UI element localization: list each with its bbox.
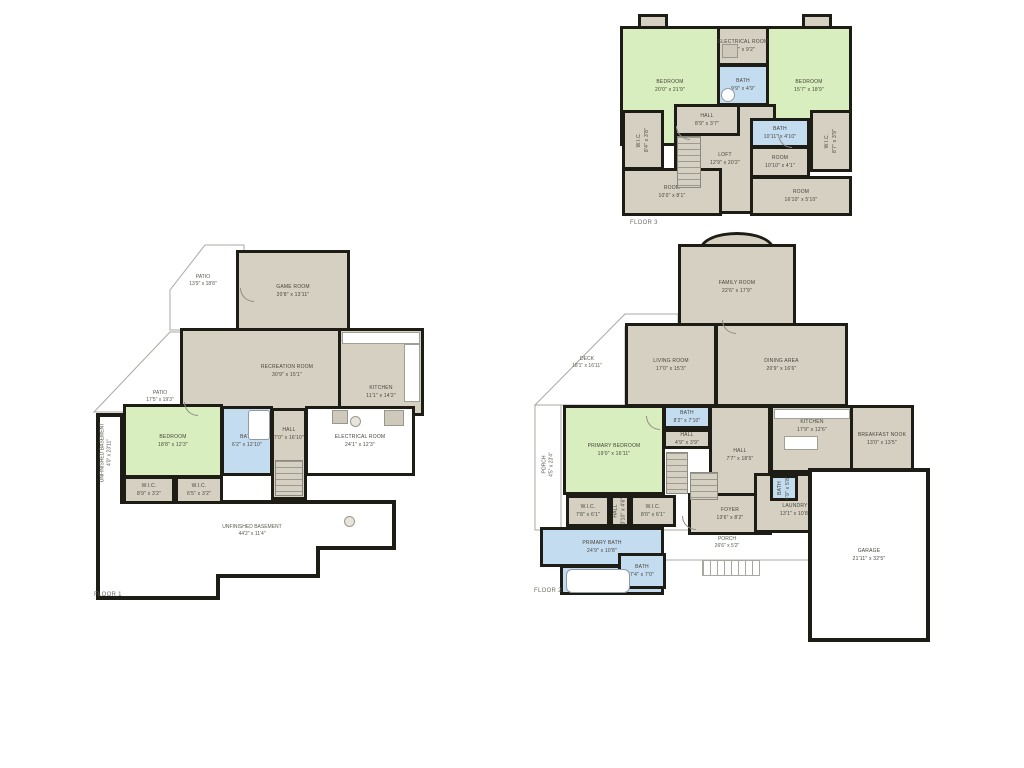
tub-icon	[566, 569, 630, 593]
floor-2-plan: FAMILY ROOM 22'6" x 17'9" LIVING ROOM 17…	[532, 228, 932, 646]
room-name: ROOM	[772, 155, 788, 162]
room-name: GAME ROOM	[276, 284, 309, 291]
room-name: BATH	[773, 126, 787, 133]
room-dims: 10'0" x 8'1"	[658, 193, 685, 200]
stairs-icon	[690, 472, 718, 500]
room-label: BEDROOM 18'8" x 12'3"	[158, 434, 188, 448]
room-name: BEDROOM	[656, 79, 683, 86]
room-name: W.I.C.	[824, 134, 831, 149]
room-label: RECREATION ROOM 30'9" x 15'1"	[261, 364, 313, 378]
floor-3-plan: BEDROOM 20'0" x 21'9" BEDROOM 15'7" x 18…	[618, 14, 854, 230]
side-porch-label: PORCH 4'5" x 23'4"	[542, 435, 555, 495]
room-name: W.I.C.	[581, 504, 596, 511]
room-name: LAUNDRY	[782, 503, 807, 510]
room-bottom-left: ROOM 10'0" x 8'1"	[622, 168, 722, 216]
room-dims: 8'0" x 6'1"	[641, 512, 665, 519]
room-name: PRIMARY BEDROOM	[588, 443, 641, 450]
room-dims: 13'6" x 8'2"	[716, 515, 743, 522]
room-dims: 20'0" x 21'9"	[655, 87, 685, 94]
room-family: FAMILY ROOM 22'6" x 17'9"	[678, 244, 796, 330]
tub-icon	[248, 410, 270, 440]
room-wic-left: W.I.C. 8'9" x 3'2"	[123, 476, 175, 504]
room-dims: 21'11" x 32'5"	[853, 556, 886, 563]
room-name: HALL	[282, 427, 295, 434]
room-label: BEDROOM 20'0" x 21'9"	[655, 79, 685, 93]
room-dims: 44'2" x 11'4"	[238, 531, 265, 538]
room-name: BEDROOM	[159, 434, 186, 441]
room-name: KITCHEN	[800, 419, 823, 426]
utility-box-icon	[384, 410, 404, 426]
room-dims: 19'0" x 16'11"	[598, 451, 631, 458]
room-dims: 17'5" x 19'3"	[146, 397, 173, 404]
room-dims: 10'10" x 4'1"	[765, 163, 795, 170]
deck-label: DECK 18'1" x 16'11"	[552, 356, 622, 369]
room-dims: 7'7" x 18'5"	[726, 456, 753, 463]
room-dims: 8'9" x 3'7"	[695, 121, 719, 128]
room-name: BATH	[736, 78, 750, 85]
room-label: HALL 7'0" x 16'10"	[274, 427, 304, 441]
room-name: BREAKFAST NOOK	[858, 432, 906, 439]
room-bath-right: BATH 10'11" x 4'10"	[750, 118, 810, 148]
basement-label: UNFINISHED BASEMENT 44'2" x 11'4"	[192, 524, 312, 537]
room-dims: 17'0" x 15'3"	[656, 366, 686, 373]
utility-box-icon	[722, 44, 738, 58]
room-dims: 26'6" x 5'2"	[715, 543, 740, 550]
utility-box-icon	[332, 410, 348, 424]
room-label: BATH 9'9" x 4'9"	[731, 78, 755, 92]
room-label: LAUNDRY 13'1" x 10'8"	[780, 503, 810, 517]
room-dims: 4'9" x 5'8"	[785, 476, 792, 500]
room-dims: 3'10" x 4'6"	[621, 497, 628, 524]
floor-1-label: FLOOR 1	[94, 592, 122, 598]
room-dims: 18'1" x 16'11"	[572, 363, 602, 370]
room-name: BATH	[680, 410, 694, 417]
toilet-icon	[721, 88, 735, 102]
room-label: LIVING ROOM 17'0" x 15'3"	[653, 358, 689, 372]
room-label: W.I.C. 8'0" x 6'1"	[641, 504, 665, 518]
patio-lower-label: PATIO 17'5" x 19'3"	[130, 390, 190, 403]
room-name: DINING AREA	[764, 358, 798, 365]
room-dims: 7'0" x 16'10"	[274, 435, 304, 442]
room-label: DINING AREA 20'9" x 16'6"	[764, 358, 798, 372]
room-name: BEDROOM	[795, 79, 822, 86]
room-name: W.I.C.	[192, 483, 207, 490]
room-dims: 4'0" x 23'11"	[106, 439, 113, 466]
room-name: ELECTRICAL ROOM	[335, 434, 386, 441]
room-dims: 6'2" x 12'10"	[232, 442, 262, 449]
kitchen-counter-icon	[774, 409, 850, 419]
room-name: W.I.C.	[636, 133, 643, 148]
room-dims: 13'9" x 18'8"	[189, 281, 216, 288]
room-dims: 6'5" x 3'2"	[187, 491, 211, 498]
room-label: HALL 8'9" x 3'7"	[695, 113, 719, 127]
room-bottom-right: ROOM 16'10" x 5'10"	[750, 176, 852, 216]
room-dims: 4'5" x 23'4"	[548, 452, 555, 477]
room-label: LOFT 12'9" x 20'2"	[710, 152, 740, 166]
room-dims: 8'9" x 3'2"	[137, 491, 161, 498]
floor-1-plan: GAME ROOM 20'8" x 13'11" RECREATION ROOM…	[92, 234, 424, 604]
kitchen-counter-icon	[404, 344, 420, 402]
room-name: HALL	[680, 432, 693, 439]
room-label: GAME ROOM 20'8" x 13'11"	[276, 284, 309, 298]
room-label: BATH 4'9" x 5'8"	[777, 476, 791, 500]
stairs-icon	[666, 452, 688, 494]
room-dims: 20'8" x 13'11"	[277, 292, 310, 299]
room-label: BREAKFAST NOOK 13'0" x 13'5"	[858, 432, 906, 446]
patio-upper-label: PATIO 13'9" x 18'8"	[180, 274, 226, 287]
porch-steps-icon	[702, 560, 760, 576]
room-dims: 8'7" x 3'9"	[832, 129, 839, 153]
room-name: BATH	[635, 564, 649, 571]
room-label: HALL 3'10" x 4'6"	[613, 497, 627, 524]
room-dims: 8'2" x 7'10"	[673, 418, 700, 425]
room-wic-right: W.I.C. 8'0" x 6'1"	[630, 495, 676, 527]
room-dims: 11'1" x 14'2"	[366, 393, 396, 400]
room-label: BATH 8'2" x 7'10"	[673, 410, 700, 424]
floorplan-canvas: BEDROOM 20'0" x 21'9" BEDROOM 15'7" x 18…	[0, 0, 1024, 768]
kitchen-island-icon	[784, 436, 818, 450]
room-label: KITCHEN 11'1" x 14'2"	[366, 385, 396, 399]
room-name: FOYER	[721, 507, 739, 514]
room-dims: 30'9" x 15'1"	[272, 372, 302, 379]
room-mid-right: ROOM 10'10" x 4'1"	[750, 146, 810, 178]
room-name: GARAGE	[858, 548, 881, 555]
room-label: ROOM 10'10" x 4'1"	[765, 155, 795, 169]
room-bath-upper: BATH 8'2" x 7'10"	[663, 405, 711, 429]
room-name: W.I.C.	[646, 504, 661, 511]
floor-3-label: FLOOR 3	[630, 220, 658, 226]
room-dining: DINING AREA 20'9" x 16'6"	[715, 323, 848, 407]
room-label: FOYER 13'6" x 8'2"	[716, 507, 743, 521]
room-dims: 13'0" x 13'5"	[867, 440, 897, 447]
room-breakfast-nook: BREAKFAST NOOK 13'0" x 13'5"	[850, 405, 914, 473]
room-label: BEDROOM 15'7" x 18'9"	[794, 79, 824, 93]
room-dims: 15'7" x 18'9"	[794, 87, 824, 94]
room-dims: 8'4" x 3'8"	[644, 128, 651, 152]
room-bedroom: BEDROOM 18'8" x 12'3"	[123, 404, 223, 478]
room-label: HALL 4'9" x 3'9"	[675, 432, 699, 446]
room-name: HALL	[700, 113, 713, 120]
ceiling-fan-icon	[344, 516, 355, 527]
room-dims: 16'10" x 5'10"	[784, 197, 817, 204]
room-dims: 4'9" x 3'9"	[675, 440, 699, 447]
basement-strip-label: UNFINISHED BASEMENT 4'0" x 23'11"	[100, 413, 113, 493]
room-name: RECREATION ROOM	[261, 364, 313, 371]
room-dims: 17'9" x 12'6"	[797, 427, 827, 434]
room-label: FAMILY ROOM 22'6" x 17'9"	[719, 280, 755, 294]
room-name: ROOM	[793, 189, 809, 196]
room-dims: 18'8" x 12'3"	[158, 442, 188, 449]
kitchen-counter-icon	[342, 332, 420, 344]
room-name: LOFT	[718, 152, 732, 159]
room-wic-right: W.I.C. 8'7" x 3'9"	[810, 110, 852, 172]
room-label: HALL 7'7" x 18'5"	[726, 448, 753, 462]
room-label: KITCHEN 17'9" x 12'6"	[797, 419, 827, 433]
room-name: LIVING ROOM	[653, 358, 689, 365]
room-wic-right: W.I.C. 6'5" x 3'2"	[175, 476, 223, 504]
room-dims: 7'4" x 7'0"	[630, 572, 654, 579]
room-name: BATH	[777, 481, 784, 495]
room-wic-left: W.I.C. 7'8" x 6'1"	[566, 495, 610, 527]
room-hall-small: HALL 4'9" x 3'9"	[663, 429, 711, 449]
floor-2-label: FLOOR 2	[534, 588, 562, 594]
room-name: W.I.C.	[142, 483, 157, 490]
room-name: FAMILY ROOM	[719, 280, 755, 287]
room-name: HALL	[613, 504, 620, 517]
room-label: W.I.C. 6'5" x 3'2"	[187, 483, 211, 497]
room-label: ROOM 16'10" x 5'10"	[784, 189, 817, 203]
room-dims: 13'1" x 10'8"	[780, 511, 810, 518]
ceiling-fan-icon	[350, 416, 361, 427]
room-dims: 24'9" x 10'8"	[587, 548, 617, 555]
room-dims: 20'9" x 16'6"	[766, 366, 796, 373]
room-dims: 24'1" x 12'3"	[345, 442, 375, 449]
room-name: PRIMARY BATH	[582, 540, 621, 547]
room-label: GARAGE 21'11" x 32'5"	[853, 548, 886, 562]
room-label: W.I.C. 7'8" x 6'1"	[576, 504, 600, 518]
room-label: W.I.C. 8'9" x 3'2"	[137, 483, 161, 497]
room-label: BATH 7'4" x 7'0"	[630, 564, 654, 578]
porch-label: PORCH 26'6" x 5'2"	[692, 536, 762, 549]
room-label: W.I.C. 8'4" x 3'8"	[636, 128, 650, 152]
room-bath-laundry: BATH 4'9" x 5'8"	[770, 475, 798, 501]
room-hall-wic: HALL 3'10" x 4'6"	[610, 495, 630, 527]
room-label: PRIMARY BATH 24'9" x 10'8"	[582, 540, 621, 554]
room-name: HALL	[733, 448, 746, 455]
room-wic-left: W.I.C. 8'4" x 3'8"	[622, 110, 664, 170]
patio-upper-outline	[170, 245, 244, 330]
room-garage: GARAGE 21'11" x 32'5"	[808, 468, 930, 642]
room-name: KITCHEN	[369, 385, 392, 392]
stairs-icon	[677, 136, 701, 188]
room-label: ELECTRICAL ROOM 24'1" x 12'3"	[335, 434, 386, 448]
room-living: LIVING ROOM 17'0" x 15'3"	[625, 323, 717, 407]
room-dims: 22'6" x 17'9"	[722, 288, 752, 295]
room-dims: 7'8" x 6'1"	[576, 512, 600, 519]
room-label: W.I.C. 8'7" x 3'9"	[824, 129, 838, 153]
room-dims: 12'9" x 20'2"	[710, 160, 740, 167]
room-dims: 9'9" x 4'9"	[731, 86, 755, 93]
stairs-icon	[275, 460, 303, 496]
room-label: PRIMARY BEDROOM 19'0" x 16'11"	[588, 443, 641, 457]
